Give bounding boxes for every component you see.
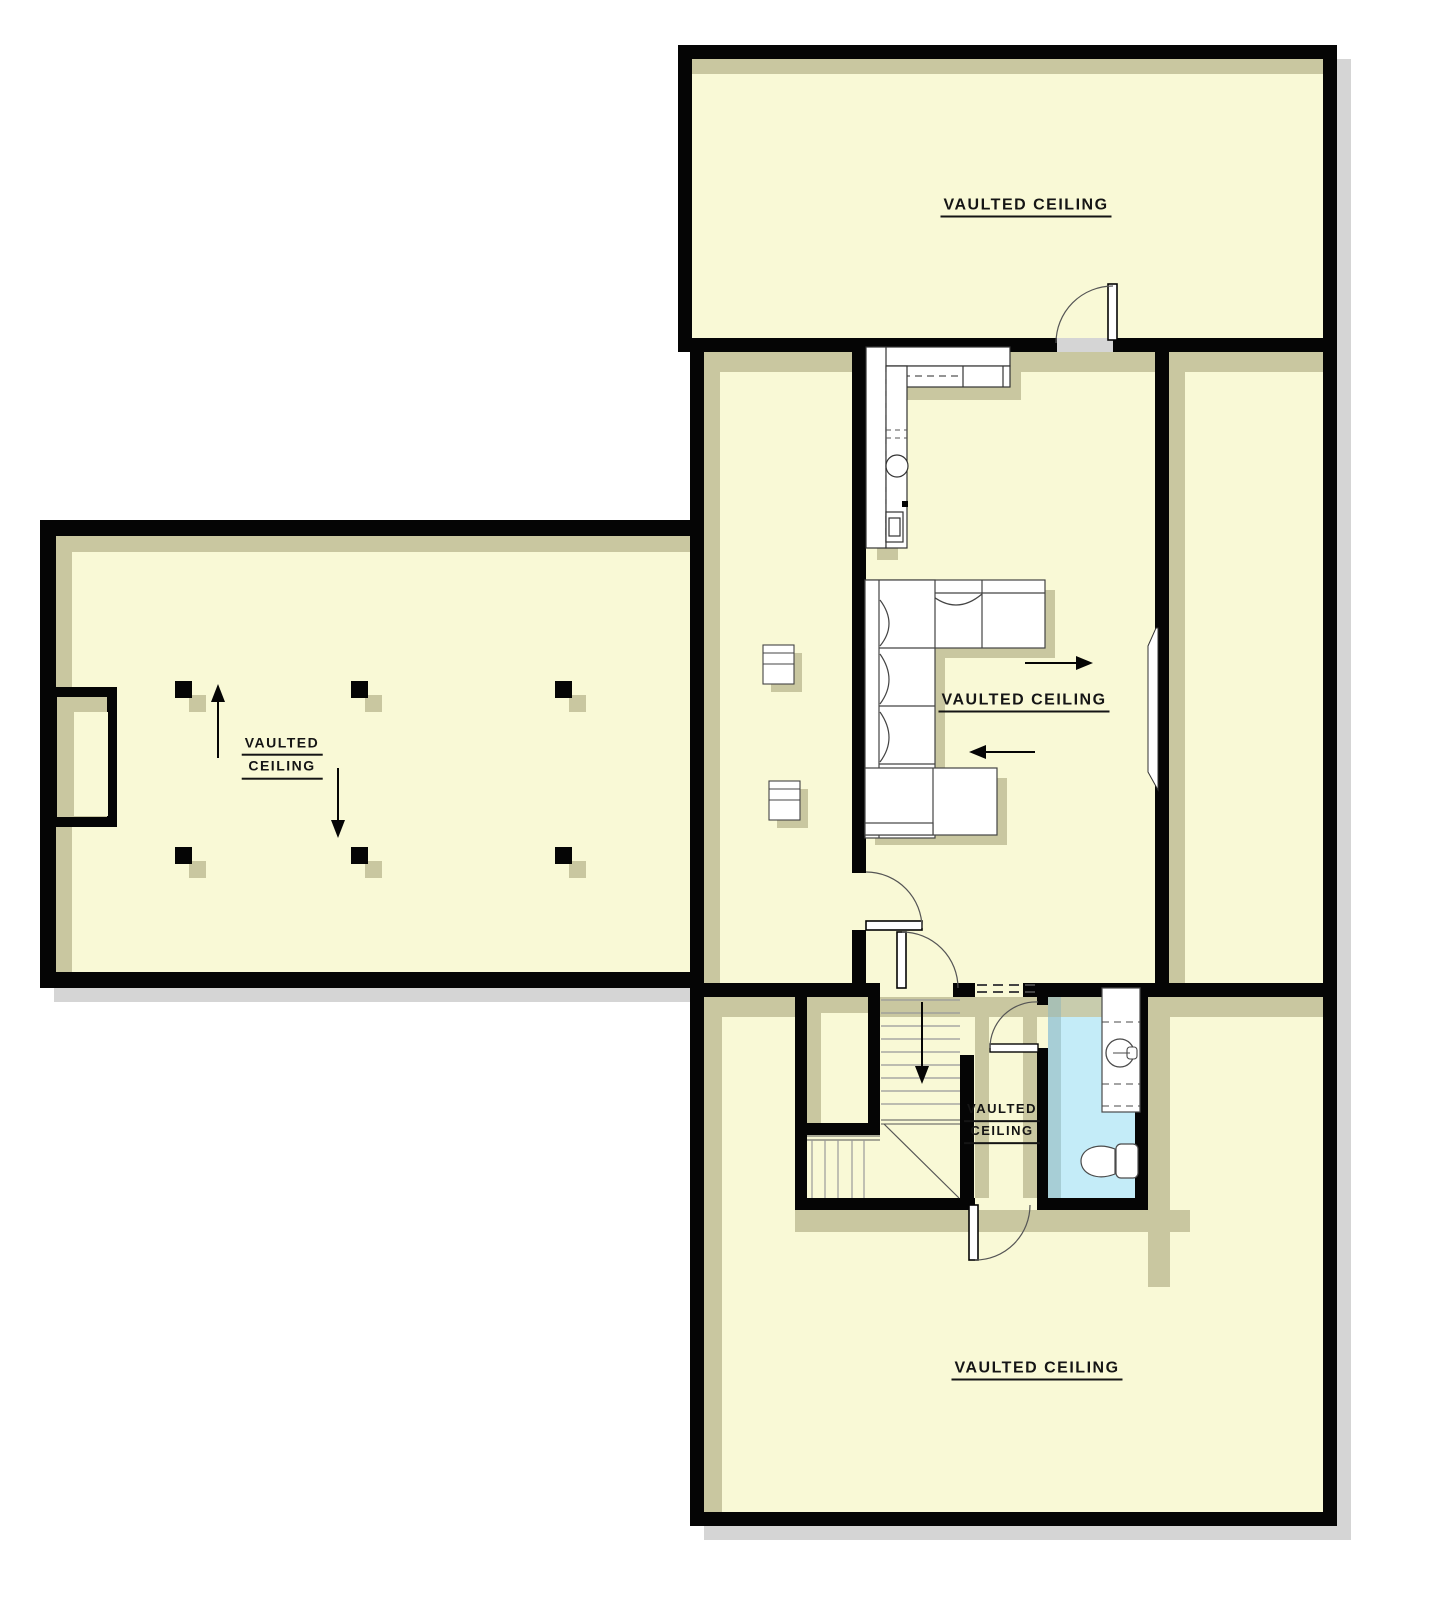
label-bottom-room: VAULTED CEILING (951, 1360, 1122, 1381)
floor-plan: VAULTED CEILING VAULTED CEILING VAULTED … (0, 0, 1445, 1607)
label-living-room: VAULTED CEILING (938, 692, 1109, 713)
fireplace-bay (52, 692, 112, 822)
window (1148, 628, 1158, 790)
vanity-sink (1102, 988, 1140, 1112)
label-wing: VAULTED CEILING (242, 733, 323, 780)
kitchen-sink (886, 455, 908, 477)
toilet (1081, 1144, 1138, 1178)
label-stair-hall: VAULTED CEILING (964, 1100, 1040, 1144)
stair-closet (807, 997, 868, 1123)
label-top-room: VAULTED CEILING (940, 197, 1111, 218)
floor-plan-drawing (0, 0, 1445, 1607)
label-top-room-text: VAULTED CEILING (940, 197, 1111, 218)
